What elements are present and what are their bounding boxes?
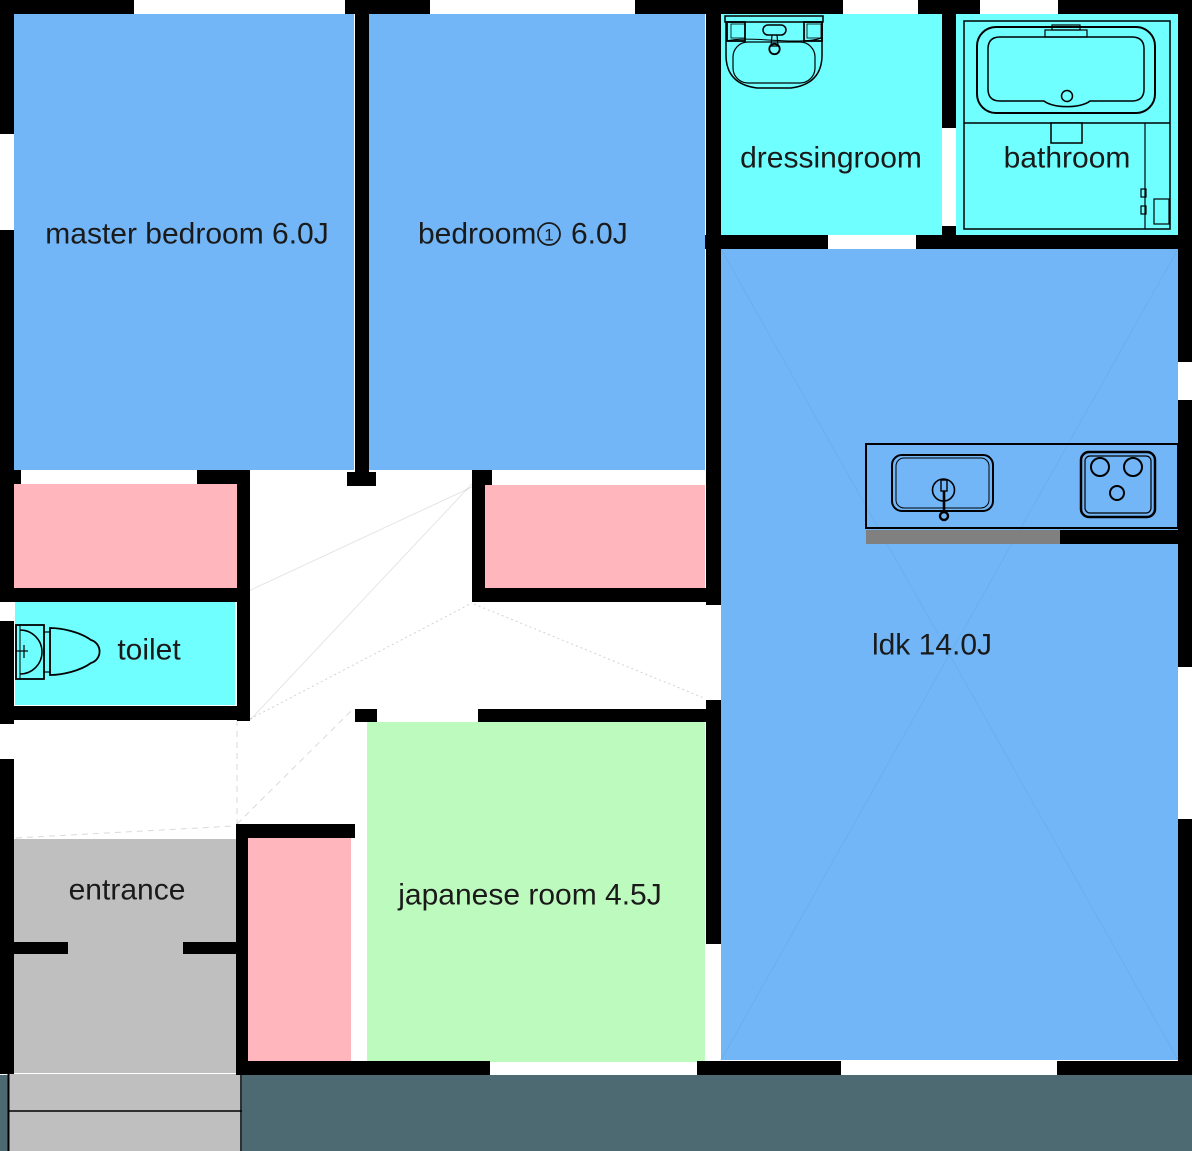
svg-text:bathroom: bathroom: [1004, 142, 1131, 175]
svg-text:japanese room 4.5J: japanese room 4.5J: [397, 879, 662, 912]
svg-text:6.0J: 6.0J: [571, 218, 628, 251]
svg-text:1: 1: [544, 226, 553, 245]
svg-text:entrance: entrance: [69, 874, 186, 907]
svg-text:toilet: toilet: [117, 634, 181, 667]
svg-text:bedroom: bedroom: [418, 218, 536, 251]
svg-text:master bedroom 6.0J: master bedroom 6.0J: [45, 218, 328, 251]
svg-text:ldk 14.0J: ldk 14.0J: [872, 629, 992, 662]
svg-text:dressingroom: dressingroom: [740, 142, 922, 175]
